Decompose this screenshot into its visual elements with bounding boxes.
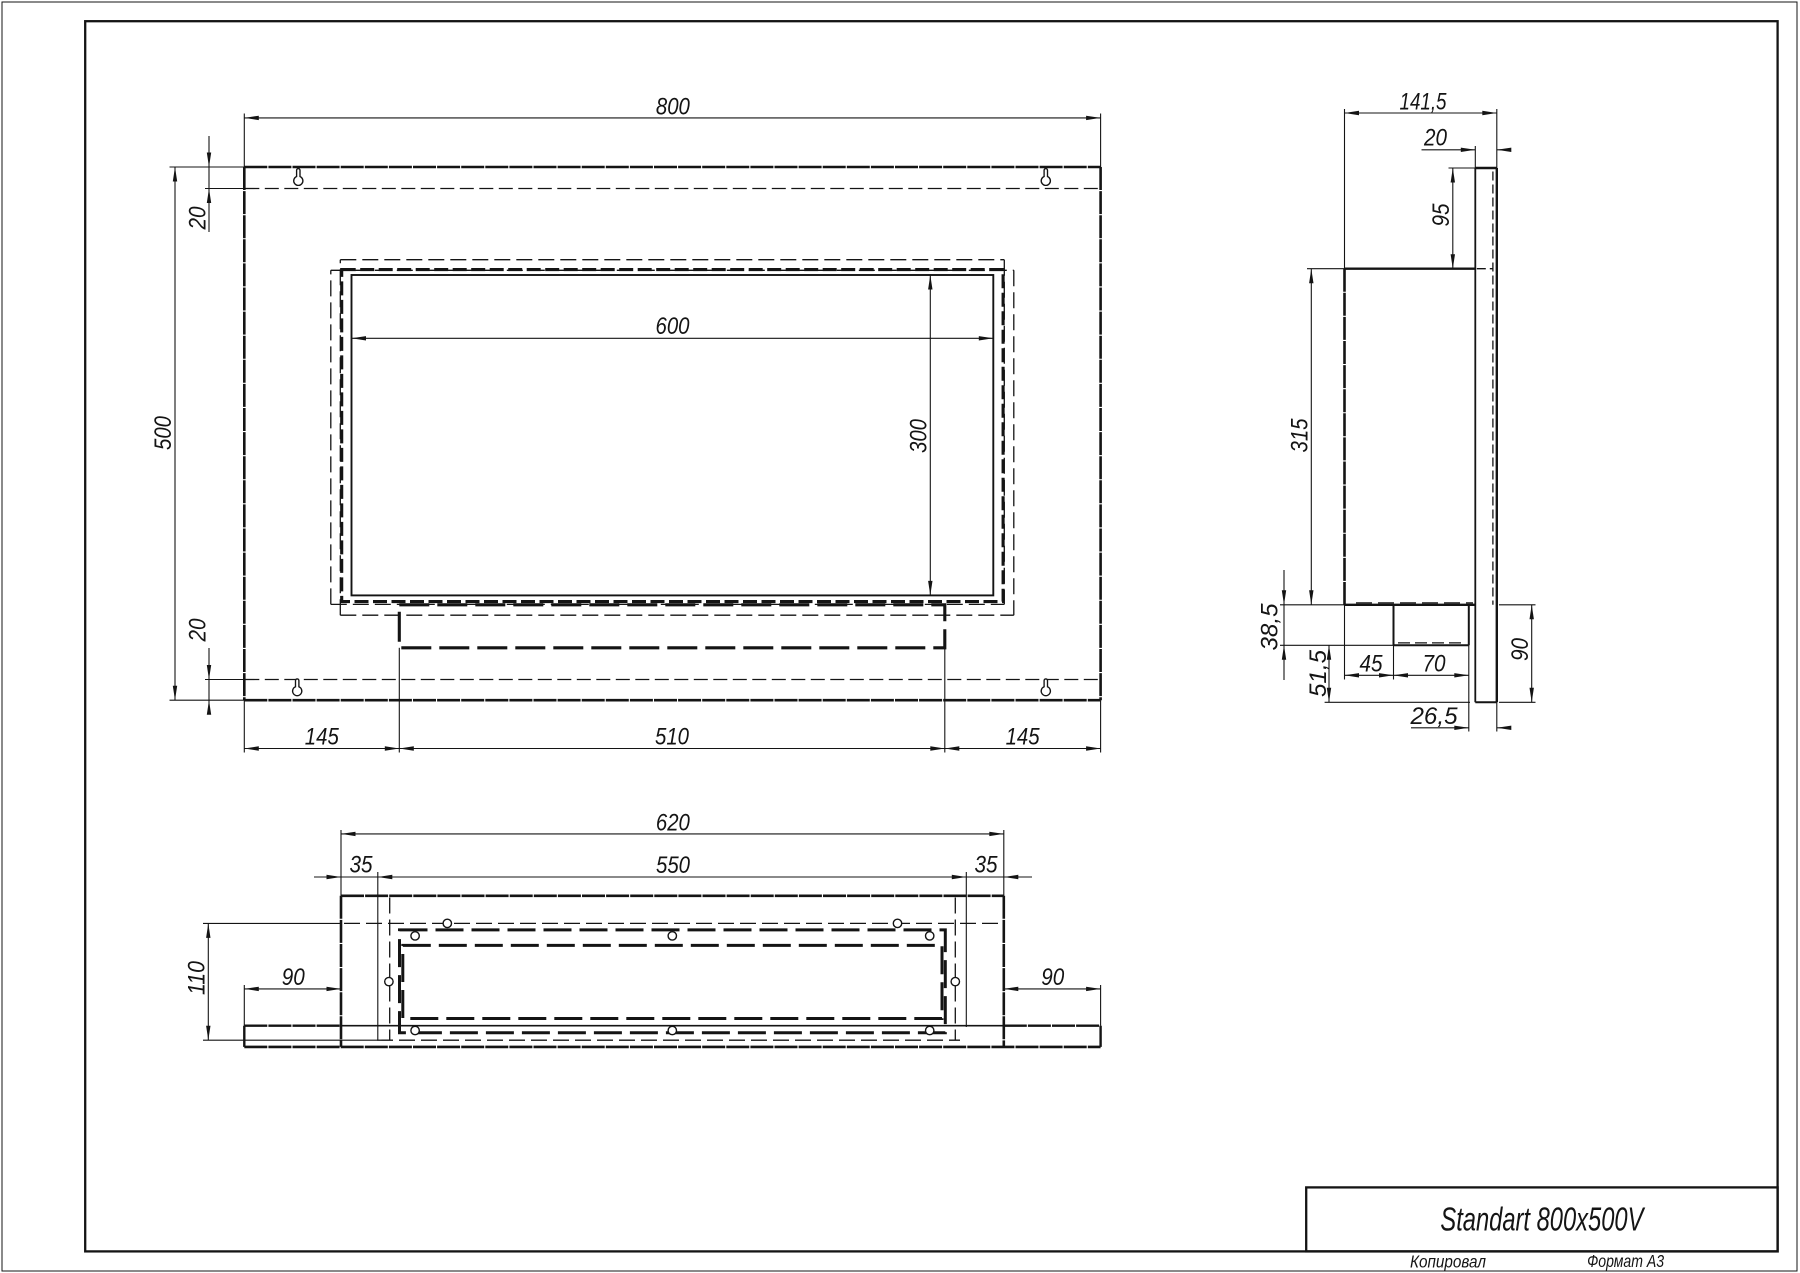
svg-text:510: 510 (655, 724, 690, 751)
svg-text:Standart 800x500V: Standart 800x500V (1440, 1201, 1645, 1238)
svg-text:550: 550 (656, 852, 691, 879)
svg-text:145: 145 (305, 724, 340, 751)
svg-text:35: 35 (350, 851, 374, 878)
svg-text:95: 95 (1428, 203, 1455, 227)
svg-text:Копировал: Копировал (1410, 1252, 1486, 1272)
svg-text:315: 315 (1286, 418, 1313, 453)
svg-text:90: 90 (282, 964, 306, 991)
svg-text:38,5: 38,5 (1257, 603, 1284, 651)
svg-text:35: 35 (975, 851, 999, 878)
svg-text:620: 620 (656, 809, 691, 836)
svg-text:600: 600 (656, 313, 691, 340)
svg-text:500: 500 (150, 415, 177, 450)
svg-text:51,5: 51,5 (1305, 649, 1332, 697)
svg-text:Формат А3: Формат А3 (1587, 1251, 1664, 1271)
svg-text:20: 20 (1423, 125, 1447, 152)
svg-text:70: 70 (1423, 651, 1447, 678)
svg-text:20: 20 (185, 206, 212, 230)
svg-text:20: 20 (185, 618, 212, 642)
svg-text:300: 300 (906, 418, 933, 453)
svg-text:90: 90 (1507, 637, 1534, 661)
svg-text:90: 90 (1041, 964, 1065, 991)
svg-text:110: 110 (184, 960, 211, 995)
svg-text:141,5: 141,5 (1400, 88, 1448, 115)
svg-text:800: 800 (656, 93, 691, 120)
svg-text:145: 145 (1006, 724, 1041, 751)
svg-text:26,5: 26,5 (1409, 703, 1458, 730)
svg-text:45: 45 (1360, 651, 1384, 678)
